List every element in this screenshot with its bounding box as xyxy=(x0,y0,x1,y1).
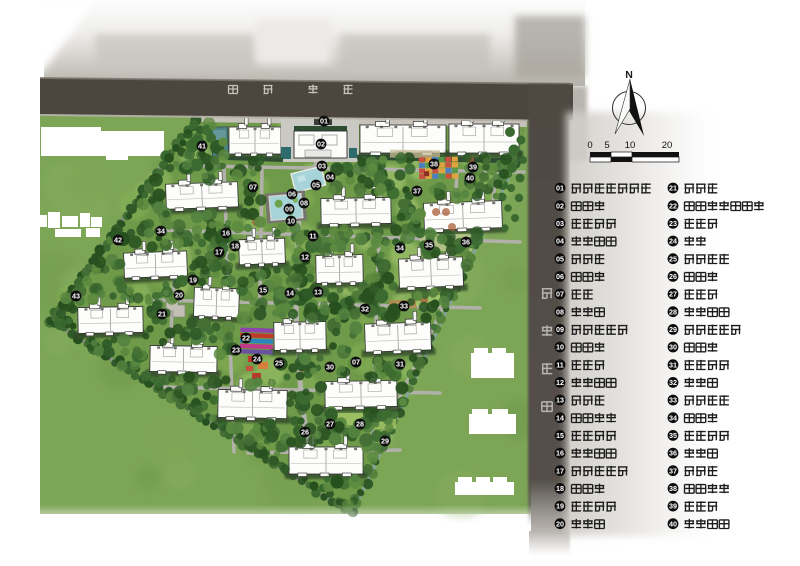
svg-text:15: 15 xyxy=(259,286,267,295)
svg-text:33: 33 xyxy=(400,302,408,311)
svg-text:09: 09 xyxy=(285,205,293,214)
svg-text:21: 21 xyxy=(158,310,166,319)
svg-text:38: 38 xyxy=(430,160,438,169)
svg-text:06: 06 xyxy=(556,272,564,281)
svg-text:05: 05 xyxy=(556,254,564,263)
svg-text:19: 19 xyxy=(556,502,564,511)
svg-text:29: 29 xyxy=(669,325,677,334)
svg-text:15: 15 xyxy=(556,431,564,440)
svg-text:25: 25 xyxy=(275,359,283,368)
svg-text:16: 16 xyxy=(556,449,564,458)
svg-text:23: 23 xyxy=(669,219,677,228)
svg-text:02: 02 xyxy=(556,201,564,210)
svg-text:18: 18 xyxy=(556,484,564,493)
svg-text:29: 29 xyxy=(381,437,389,446)
svg-text:11: 11 xyxy=(556,360,564,369)
svg-text:10: 10 xyxy=(625,140,636,151)
svg-text:36: 36 xyxy=(669,449,677,458)
svg-text:03: 03 xyxy=(556,219,564,228)
svg-text:38: 38 xyxy=(669,484,677,493)
svg-text:04: 04 xyxy=(556,237,564,246)
svg-text:07: 07 xyxy=(556,290,564,299)
svg-text:17: 17 xyxy=(556,466,564,475)
svg-text:20: 20 xyxy=(175,291,183,300)
svg-text:13: 13 xyxy=(314,288,322,297)
svg-text:13: 13 xyxy=(556,396,564,405)
svg-text:35: 35 xyxy=(425,241,433,250)
svg-text:28: 28 xyxy=(669,307,677,316)
svg-text:07: 07 xyxy=(249,183,257,192)
svg-text:36: 36 xyxy=(462,238,470,247)
svg-text:34: 34 xyxy=(157,227,165,236)
svg-text:39: 39 xyxy=(469,163,477,172)
svg-text:37: 37 xyxy=(669,466,677,475)
svg-text:16: 16 xyxy=(222,229,230,238)
svg-text:33: 33 xyxy=(669,396,677,405)
svg-text:24: 24 xyxy=(253,355,261,364)
svg-text:41: 41 xyxy=(198,142,206,151)
svg-text:26: 26 xyxy=(669,272,677,281)
svg-text:18: 18 xyxy=(231,242,239,251)
svg-text:08: 08 xyxy=(556,307,564,316)
svg-text:25: 25 xyxy=(669,254,677,263)
svg-text:04: 04 xyxy=(326,173,334,182)
svg-text:14: 14 xyxy=(286,289,294,298)
svg-text:22: 22 xyxy=(669,201,677,210)
svg-text:N: N xyxy=(625,69,633,81)
svg-text:27: 27 xyxy=(326,420,334,429)
svg-text:28: 28 xyxy=(356,420,364,429)
svg-text:20: 20 xyxy=(556,519,564,528)
svg-text:09: 09 xyxy=(556,325,564,334)
svg-text:30: 30 xyxy=(669,343,677,352)
svg-text:14: 14 xyxy=(556,413,564,422)
svg-text:02: 02 xyxy=(317,140,325,149)
svg-text:06: 06 xyxy=(288,190,296,199)
svg-text:35: 35 xyxy=(669,431,677,440)
svg-text:32: 32 xyxy=(669,378,677,387)
svg-text:26: 26 xyxy=(301,428,309,437)
svg-text:0: 0 xyxy=(587,140,592,151)
svg-text:12: 12 xyxy=(301,253,309,262)
svg-text:37: 37 xyxy=(413,187,421,196)
svg-text:43: 43 xyxy=(72,292,80,301)
svg-text:20: 20 xyxy=(662,140,673,151)
svg-text:39: 39 xyxy=(669,502,677,511)
svg-text:40: 40 xyxy=(669,519,677,528)
svg-text:08: 08 xyxy=(300,199,308,208)
svg-text:11: 11 xyxy=(309,232,317,241)
svg-text:05: 05 xyxy=(312,181,320,190)
svg-text:30: 30 xyxy=(326,363,334,372)
svg-text:24: 24 xyxy=(669,237,677,246)
svg-text:22: 22 xyxy=(242,334,250,343)
svg-text:42: 42 xyxy=(114,236,122,245)
svg-text:21: 21 xyxy=(669,184,677,193)
svg-text:17: 17 xyxy=(215,248,223,257)
svg-text:19: 19 xyxy=(189,276,197,285)
svg-text:07: 07 xyxy=(352,358,360,367)
svg-text:12: 12 xyxy=(556,378,564,387)
svg-text:31: 31 xyxy=(669,360,677,369)
svg-text:34: 34 xyxy=(396,244,404,253)
svg-text:27: 27 xyxy=(669,290,677,299)
svg-text:5: 5 xyxy=(604,140,609,151)
svg-text:10: 10 xyxy=(287,217,295,226)
svg-text:10: 10 xyxy=(556,343,564,352)
svg-text:31: 31 xyxy=(396,360,404,369)
svg-text:23: 23 xyxy=(232,346,240,355)
svg-text:01: 01 xyxy=(556,184,564,193)
svg-text:01: 01 xyxy=(320,117,328,126)
svg-text:32: 32 xyxy=(361,305,369,314)
svg-text:40: 40 xyxy=(466,174,474,183)
svg-text:34: 34 xyxy=(669,413,677,422)
svg-text:03: 03 xyxy=(318,162,326,171)
